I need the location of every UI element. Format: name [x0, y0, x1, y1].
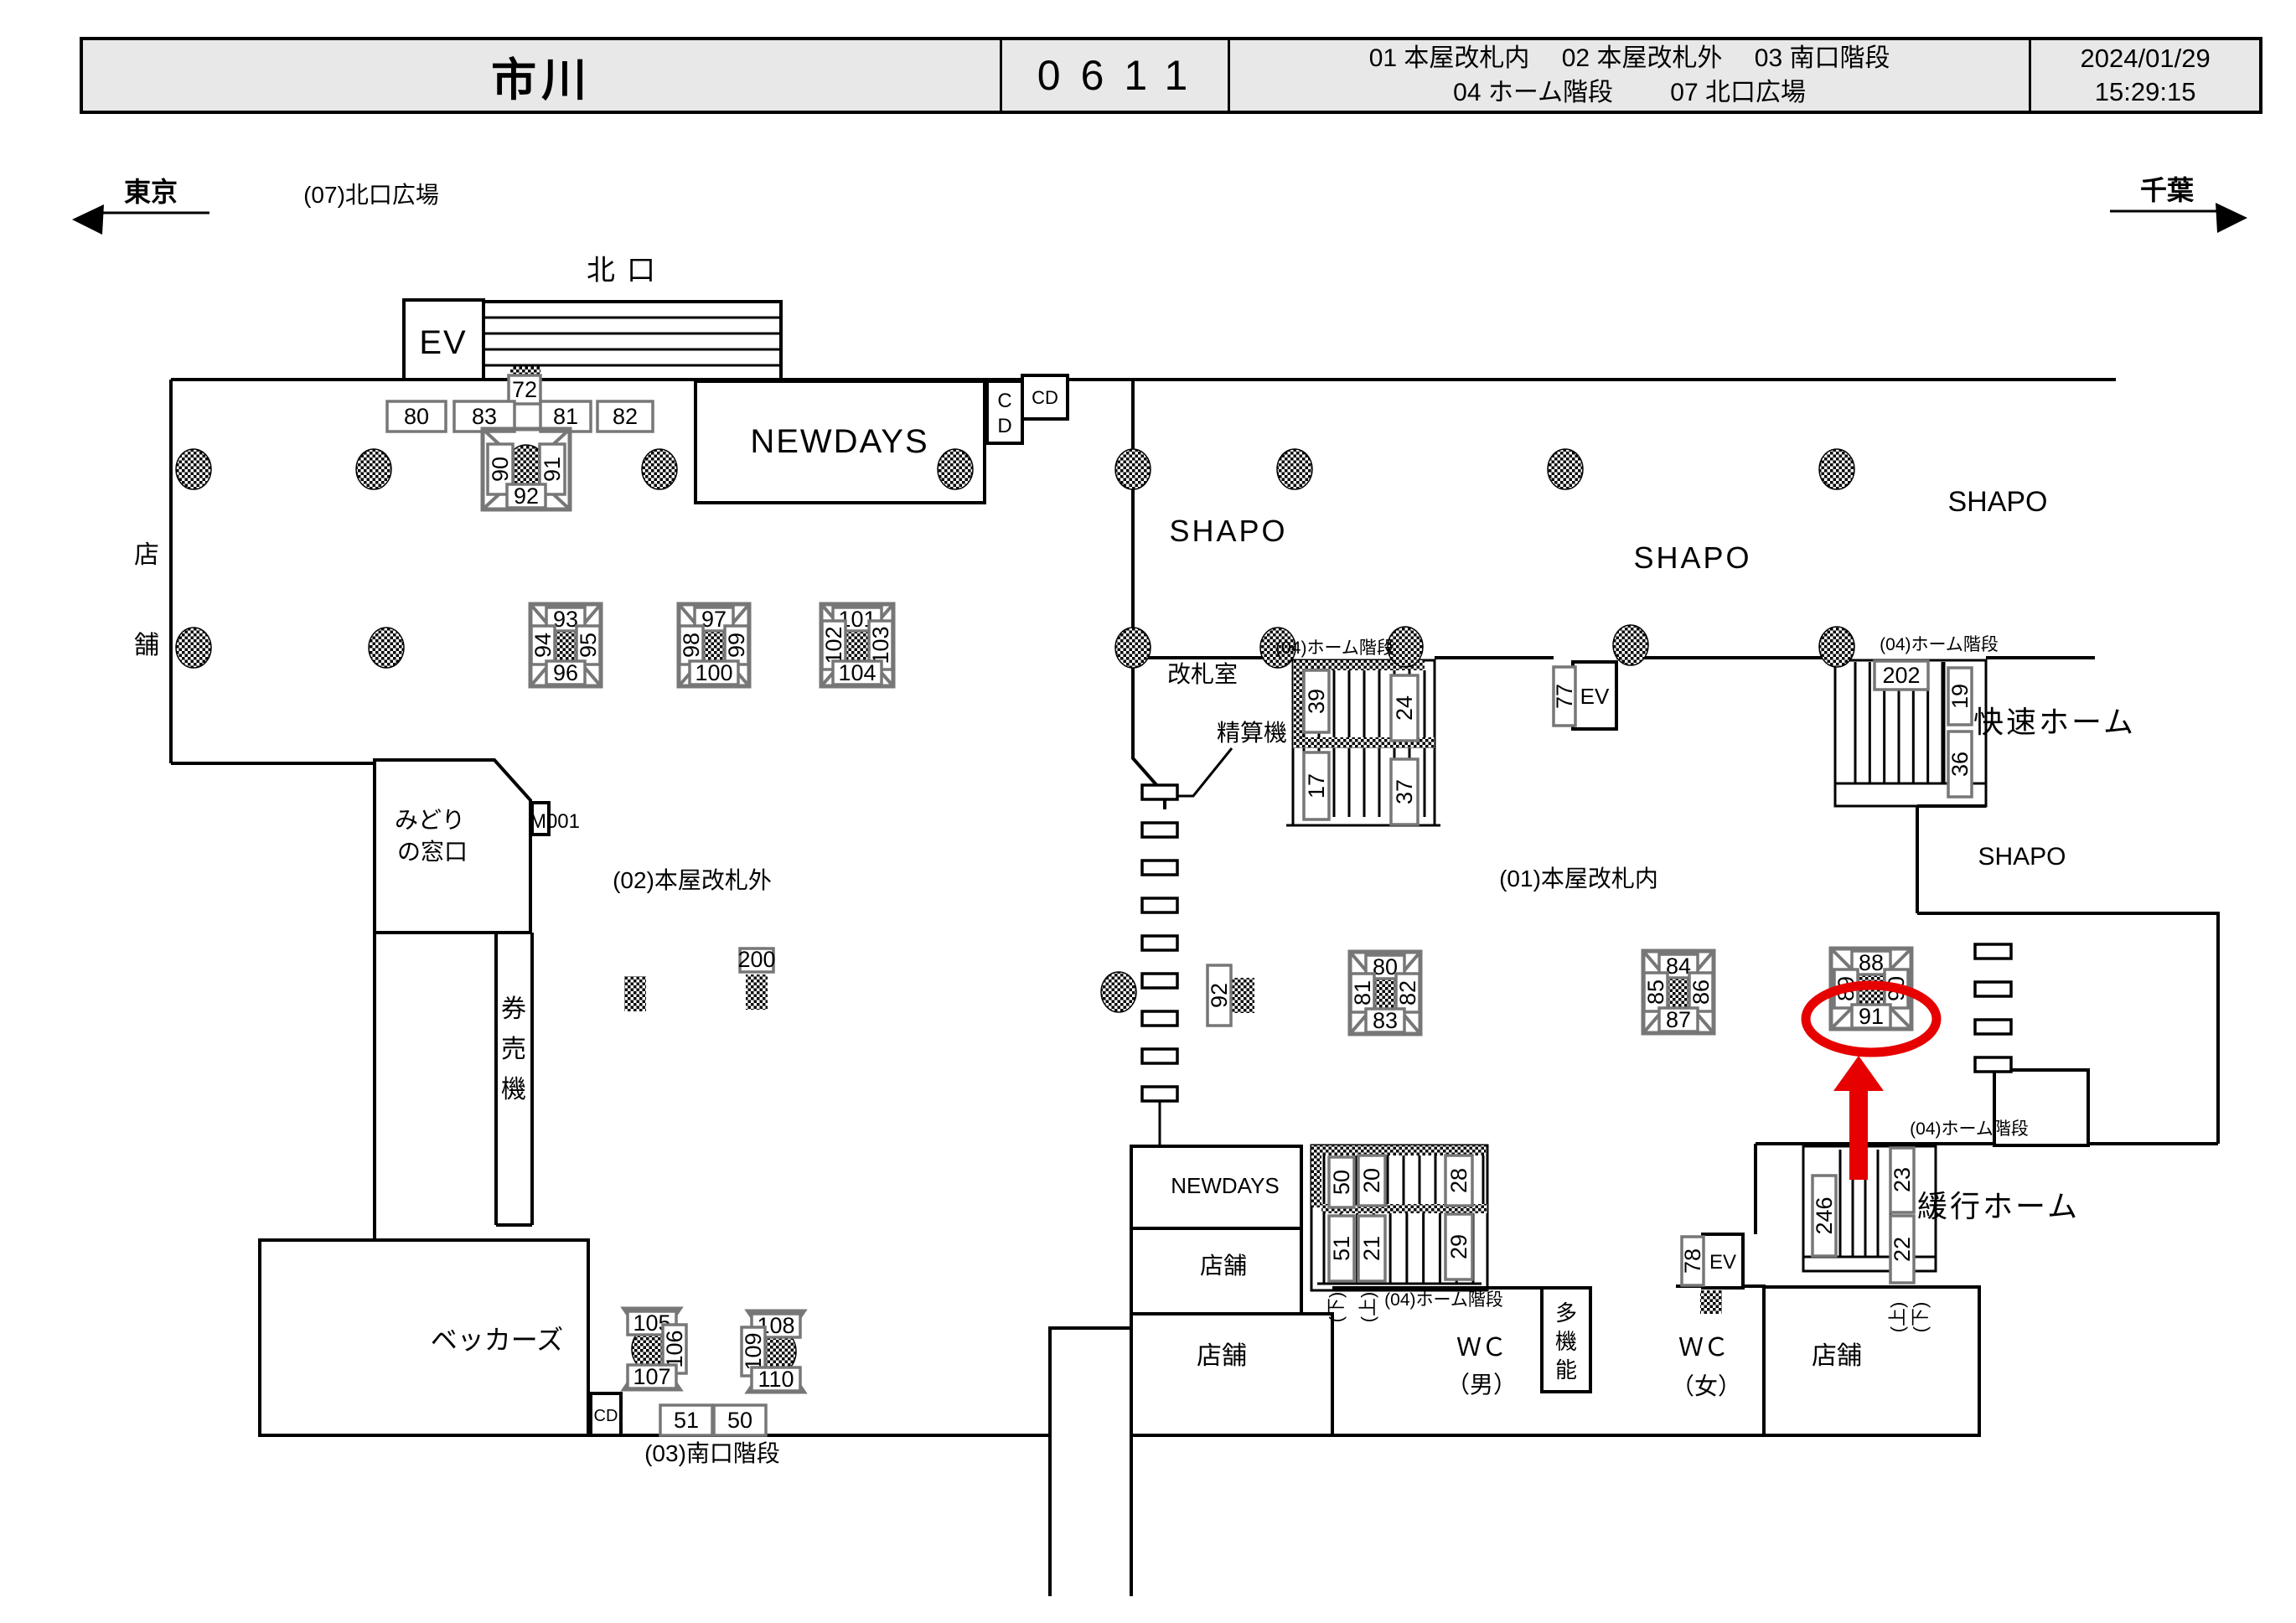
pillar — [642, 449, 677, 489]
camera-box-80[interactable]: 80 — [387, 401, 446, 432]
wc-female-label-1: ＷＣ — [1678, 1334, 1729, 1362]
inside-gates-label: (01)本屋改札内 — [1499, 866, 1658, 892]
camera-box-86[interactable]: 86 — [1688, 973, 1714, 1011]
ticket-gate — [1142, 1087, 1177, 1101]
camera-box-104[interactable]: 104 — [833, 660, 882, 685]
direction-chiba: 千葉 — [2110, 175, 2247, 233]
pillar — [1819, 627, 1854, 667]
svg-text:77: 77 — [1552, 684, 1577, 709]
camera-box-100[interactable]: 100 — [690, 660, 738, 685]
ticket-gate — [1142, 785, 1177, 799]
camera-box-28[interactable]: 28 — [1445, 1155, 1472, 1206]
svg-text:22: 22 — [1890, 1237, 1915, 1262]
camera-box-107[interactable]: 107 — [628, 1364, 676, 1389]
camera-cluster-90-92: 90 91 92 — [483, 429, 570, 509]
beckers-label: ベッカーズ — [431, 1325, 563, 1355]
shapo-1-label: SHAPO — [1169, 514, 1287, 548]
cd-vert-c: C — [997, 390, 1011, 412]
camera-box-36[interactable]: 36 — [1947, 731, 1973, 797]
down-center-label: (下) — [1326, 1292, 1347, 1323]
camera-box-87[interactable]: 87 — [1659, 1007, 1698, 1032]
local-platform-label: 緩行ホーム — [1917, 1189, 2080, 1223]
camera-box-51-stair[interactable]: 51 — [1329, 1216, 1354, 1281]
svg-text:91: 91 — [1859, 1004, 1884, 1029]
north-gate-hatch — [510, 365, 540, 375]
camera-box-246[interactable]: 246 — [1812, 1176, 1837, 1256]
ev-mini-stairs — [1700, 1290, 1722, 1314]
camera-box-78[interactable]: 78 — [1680, 1237, 1705, 1285]
pillar-square — [624, 976, 646, 1011]
svg-text:81: 81 — [1350, 980, 1375, 1005]
camera-box-85[interactable]: 85 — [1643, 973, 1668, 1011]
camera-cluster-80-83: 80 81 82 83 — [1350, 952, 1420, 1034]
shop-br-label: 店舗 — [1812, 1342, 1862, 1370]
svg-text:78: 78 — [1680, 1248, 1705, 1274]
ticket-gate — [1975, 982, 2011, 996]
svg-text:98: 98 — [679, 633, 704, 658]
camera-box-23[interactable]: 23 — [1890, 1148, 1915, 1212]
pillar — [1819, 449, 1854, 489]
svg-text:36: 36 — [1947, 752, 1973, 777]
camera-box-22[interactable]: 22 — [1890, 1216, 1915, 1283]
shop-center-2 — [1131, 1314, 1332, 1435]
camera-box-77[interactable]: 77 — [1552, 667, 1577, 726]
svg-text:109: 109 — [741, 1332, 766, 1370]
pillar — [1277, 449, 1312, 489]
ticket-gate — [1142, 1011, 1177, 1026]
ticket-gate — [1142, 898, 1177, 912]
svg-text:29: 29 — [1446, 1234, 1471, 1259]
rapid-platform-label: 快速ホーム — [1973, 705, 2136, 739]
camera-box-96[interactable]: 96 — [546, 660, 585, 685]
svg-text:200: 200 — [737, 947, 775, 972]
pillar — [1548, 449, 1583, 489]
ev-north-label: EV — [419, 324, 467, 361]
gate-office-label: 改札室 — [1167, 661, 1238, 687]
newdays-bottom-label: NEWDAYS — [1171, 1173, 1280, 1198]
svg-text:97: 97 — [701, 607, 727, 632]
svg-text:87: 87 — [1666, 1007, 1691, 1032]
camera-box-21[interactable]: 21 — [1358, 1216, 1385, 1281]
wc-male-label-2: （男） — [1446, 1372, 1517, 1398]
camera-box-83i[interactable]: 83 — [1366, 1008, 1404, 1033]
camera-cluster-105-107: 105 106 107 — [624, 1309, 687, 1389]
svg-text:90: 90 — [488, 457, 513, 482]
svg-text:83: 83 — [472, 404, 497, 429]
cd-top-label: CD — [1032, 387, 1058, 408]
ticket-gate — [1975, 1057, 2011, 1072]
camera-box-202[interactable]: 202 — [1875, 661, 1928, 690]
camera-box-20[interactable]: 20 — [1358, 1155, 1385, 1206]
svg-text:96: 96 — [553, 660, 578, 685]
svg-text:81: 81 — [553, 404, 578, 429]
shapo-3-label: SHAPO — [1947, 486, 2047, 518]
platform-stairs-3-label: (04)ホーム階段 — [1910, 1119, 2029, 1139]
pillar-square — [1231, 978, 1254, 1013]
camera-box-51-south[interactable]: 51 — [660, 1405, 712, 1435]
camera-cluster-101-104: 101 102 103 104 — [821, 604, 893, 686]
camera-box-92[interactable]: 92 — [507, 483, 546, 509]
svg-text:72: 72 — [512, 377, 537, 402]
svg-text:91: 91 — [540, 457, 565, 482]
camera-box-39[interactable]: 39 — [1304, 670, 1329, 732]
pillar — [356, 449, 391, 489]
pillar — [1613, 625, 1648, 665]
chiba-label: 千葉 — [2140, 175, 2195, 205]
svg-text:92: 92 — [514, 483, 539, 509]
svg-text:82: 82 — [613, 404, 638, 429]
camera-box-82i[interactable]: 82 — [1395, 974, 1420, 1012]
tokyo-label: 東京 — [124, 177, 178, 207]
svg-text:92: 92 — [1207, 983, 1232, 1008]
svg-text:85: 85 — [1643, 979, 1668, 1005]
svg-text:37: 37 — [1392, 779, 1417, 804]
up-center-label: (上) — [1357, 1292, 1378, 1323]
svg-text:51: 51 — [674, 1408, 699, 1433]
camera-map-page: 市川 0611 01 本屋改札内 02 本屋改札外 03 南口階段 04 ホーム… — [0, 0, 2296, 1623]
pillar — [1115, 628, 1151, 668]
camera-cluster-84-87: 84 85 86 87 — [1643, 951, 1714, 1033]
svg-text:95: 95 — [576, 633, 601, 658]
platform-stairs-4-label: (04)ホーム階段 — [1384, 1290, 1503, 1310]
ev-south-label: EV — [1709, 1251, 1736, 1274]
shapo-2-label: SHAPO — [1633, 540, 1751, 575]
camera-box-82[interactable]: 82 — [597, 401, 653, 432]
svg-text:83: 83 — [1373, 1008, 1398, 1033]
camera-box-29[interactable]: 29 — [1445, 1214, 1472, 1279]
midori-label-2: の窓口 — [397, 839, 468, 865]
camera-box-91i[interactable]: 91 — [1852, 1004, 1890, 1029]
svg-text:107: 107 — [633, 1364, 670, 1389]
pillar — [1115, 449, 1151, 489]
svg-text:103: 103 — [868, 626, 893, 664]
cd-bottom-label: CD — [594, 1407, 618, 1425]
svg-text:24: 24 — [1392, 695, 1417, 721]
ticket-gate — [1975, 1020, 2011, 1034]
camera-box-81i[interactable]: 81 — [1350, 974, 1375, 1012]
camera-cluster-93-96: 93 94 95 96 — [530, 604, 601, 686]
svg-text:94: 94 — [530, 633, 556, 658]
svg-text:50: 50 — [1329, 1170, 1354, 1195]
outside-gates-label: (02)本屋改札外 — [613, 867, 772, 893]
svg-text:88: 88 — [1859, 950, 1884, 975]
ticket-gate — [1975, 944, 2011, 959]
svg-text:21: 21 — [1359, 1236, 1384, 1261]
pillar — [176, 449, 211, 489]
svg-text:17: 17 — [1304, 773, 1329, 799]
down-right-label: (下) — [1910, 1302, 1931, 1333]
pillar — [1101, 972, 1136, 1012]
direction-tokyo: 東京 — [72, 177, 209, 235]
midori-label-1: みどり — [395, 807, 465, 833]
left-arrow-icon — [72, 204, 104, 235]
shop-left-char-2: 舗 — [134, 632, 159, 659]
camera-box-50-stair[interactable]: 50 — [1329, 1157, 1354, 1207]
svg-text:80: 80 — [404, 404, 429, 429]
camera-box-99[interactable]: 99 — [724, 626, 749, 664]
svg-text:23: 23 — [1890, 1167, 1915, 1192]
svg-text:50: 50 — [727, 1408, 752, 1433]
ticket-gate — [1142, 823, 1177, 837]
camera-box-19[interactable]: 19 — [1947, 668, 1973, 725]
multi-char-3: 能 — [1555, 1357, 1577, 1383]
svg-text:28: 28 — [1446, 1168, 1471, 1193]
ticket-gate — [1142, 974, 1177, 988]
up-right-label: (上) — [1887, 1302, 1908, 1333]
kenbaiki-char-1: 券 — [501, 995, 526, 1023]
ticket-gate — [1142, 861, 1177, 875]
svg-text:102: 102 — [821, 626, 846, 664]
camera-box-95[interactable]: 95 — [576, 626, 601, 664]
camera-box-72[interactable]: 72 — [509, 375, 540, 404]
svg-text:84: 84 — [1666, 954, 1691, 979]
svg-text:80: 80 — [1373, 954, 1398, 979]
shop-bottom-right — [1764, 1287, 1979, 1435]
svg-text:106: 106 — [662, 1330, 687, 1367]
south-stairs-label: (03)南口階段 — [644, 1440, 780, 1466]
floor-plan: 東京 千葉 (07)北口広場 北口 — [0, 0, 2296, 1623]
north-plaza-label: (07)北口広場 — [303, 182, 439, 208]
camera-box-110[interactable]: 110 — [752, 1367, 800, 1392]
camera-box-50-south[interactable]: 50 — [714, 1405, 766, 1435]
camera-box-37[interactable]: 37 — [1391, 759, 1418, 824]
multi-char-2: 機 — [1555, 1329, 1577, 1354]
svg-text:39: 39 — [1304, 689, 1329, 714]
svg-text:104: 104 — [838, 660, 876, 685]
camera-box-24[interactable]: 24 — [1391, 675, 1418, 741]
cd-vert-d: D — [997, 415, 1011, 437]
kenbaiki-char-3: 機 — [501, 1076, 526, 1104]
wc-male-label-1: ＷＣ — [1456, 1334, 1507, 1362]
m001-label: M001 — [530, 810, 580, 833]
camera-box-98[interactable]: 98 — [679, 626, 704, 664]
camera-box-92-gate[interactable]: 92 — [1207, 965, 1232, 1026]
svg-text:20: 20 — [1359, 1168, 1384, 1193]
shop-c1-label: 店舗 — [1200, 1253, 1247, 1279]
platform-stairs-2-label: (04)ホーム階段 — [1880, 635, 1999, 654]
shop-c2-label: 店舗 — [1197, 1342, 1247, 1370]
fare-adjust-label: 精算機 — [1217, 720, 1287, 746]
shapo-4-label: SHAPO — [1978, 843, 2066, 871]
north-gate-label: 北口 — [587, 255, 667, 287]
camera-box-17[interactable]: 17 — [1304, 752, 1329, 819]
camera-box-200[interactable]: 200 — [737, 947, 775, 972]
ev-center-label: EV — [1580, 684, 1610, 709]
svg-text:110: 110 — [758, 1367, 794, 1392]
svg-text:202: 202 — [1882, 663, 1920, 688]
pillar — [369, 628, 404, 668]
right-arrow-icon — [2216, 203, 2247, 233]
shop-left-char-1: 店 — [134, 541, 159, 569]
svg-text:246: 246 — [1812, 1197, 1837, 1234]
camera-cluster-97-100: 97 98 99 100 — [679, 604, 749, 686]
newdays-top-label: NEWDAYS — [750, 423, 928, 460]
kenbaiki-char-2: 売 — [501, 1036, 526, 1063]
camera-cluster-108-110: 108 109 110 — [741, 1311, 804, 1392]
svg-text:86: 86 — [1688, 979, 1714, 1005]
pillar-square — [746, 974, 768, 1010]
multi-char-1: 多 — [1555, 1300, 1577, 1326]
wc-female-label-2: （女） — [1671, 1373, 1741, 1399]
ticket-gate — [1142, 936, 1177, 950]
svg-text:82: 82 — [1395, 980, 1420, 1005]
ticket-gate — [1142, 1049, 1177, 1063]
svg-text:100: 100 — [695, 660, 732, 685]
pillar — [938, 449, 973, 489]
camera-box-94[interactable]: 94 — [530, 626, 556, 664]
svg-text:19: 19 — [1947, 684, 1973, 709]
platform-stairs-1-label: (04)ホーム階段 — [1275, 638, 1394, 658]
svg-text:99: 99 — [724, 633, 749, 658]
svg-text:51: 51 — [1329, 1236, 1354, 1261]
pillar — [176, 628, 211, 668]
svg-text:93: 93 — [553, 607, 578, 632]
